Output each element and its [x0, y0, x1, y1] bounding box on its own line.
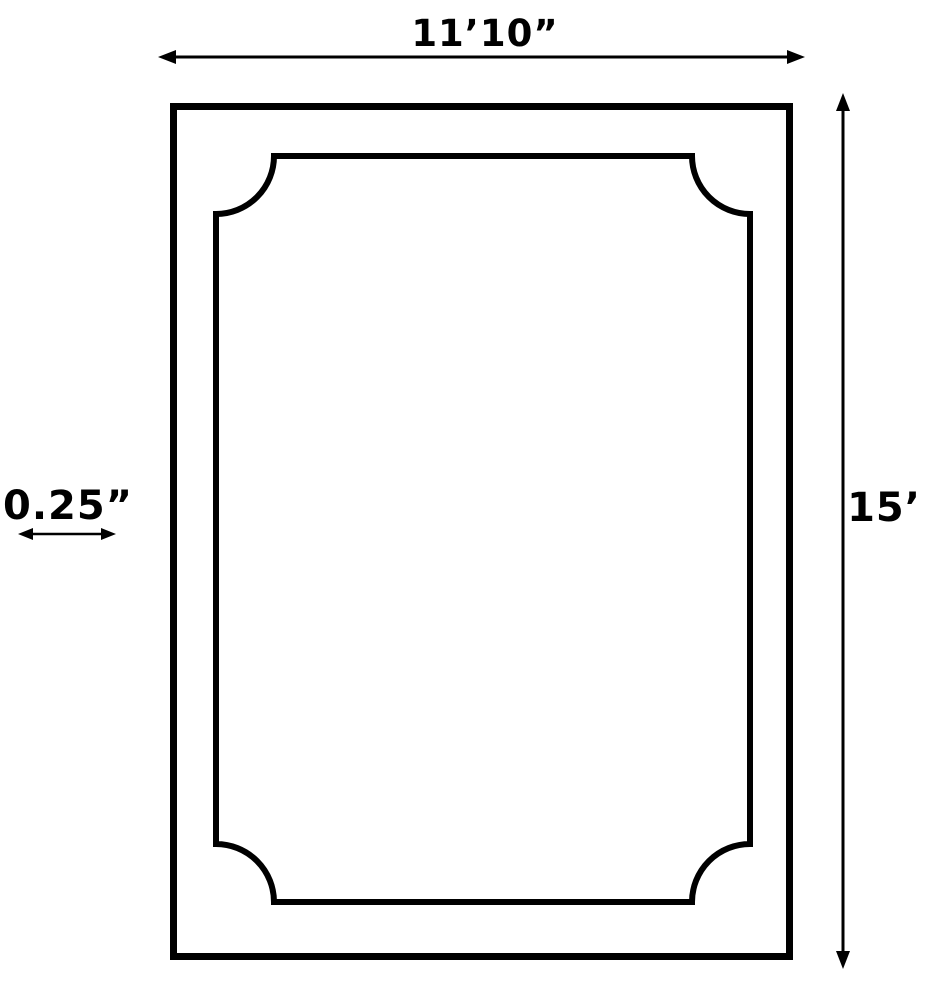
- border-thickness-label: 0.25”: [3, 483, 133, 529]
- arrow-right-icon: [787, 50, 805, 64]
- height-dimension-label: 15’: [847, 485, 921, 531]
- width-dimension: 11’10”: [158, 12, 805, 64]
- arrow-left-icon: [158, 50, 176, 64]
- outer-rectangle: [174, 107, 790, 957]
- diagram-svg: 11’10” 15’ 0.25”: [0, 0, 932, 990]
- arrow-up-icon: [836, 93, 850, 111]
- height-dimension: 15’: [836, 93, 921, 969]
- border-thickness-dimension: 0.25”: [3, 483, 133, 540]
- arrow-down-icon: [836, 951, 850, 969]
- small-arrow-right-icon: [101, 528, 116, 540]
- small-arrow-left-icon: [18, 528, 33, 540]
- dimension-diagram: 11’10” 15’ 0.25”: [0, 0, 932, 990]
- inner-scalloped-rectangle: [216, 156, 750, 902]
- width-dimension-label: 11’10”: [411, 12, 558, 55]
